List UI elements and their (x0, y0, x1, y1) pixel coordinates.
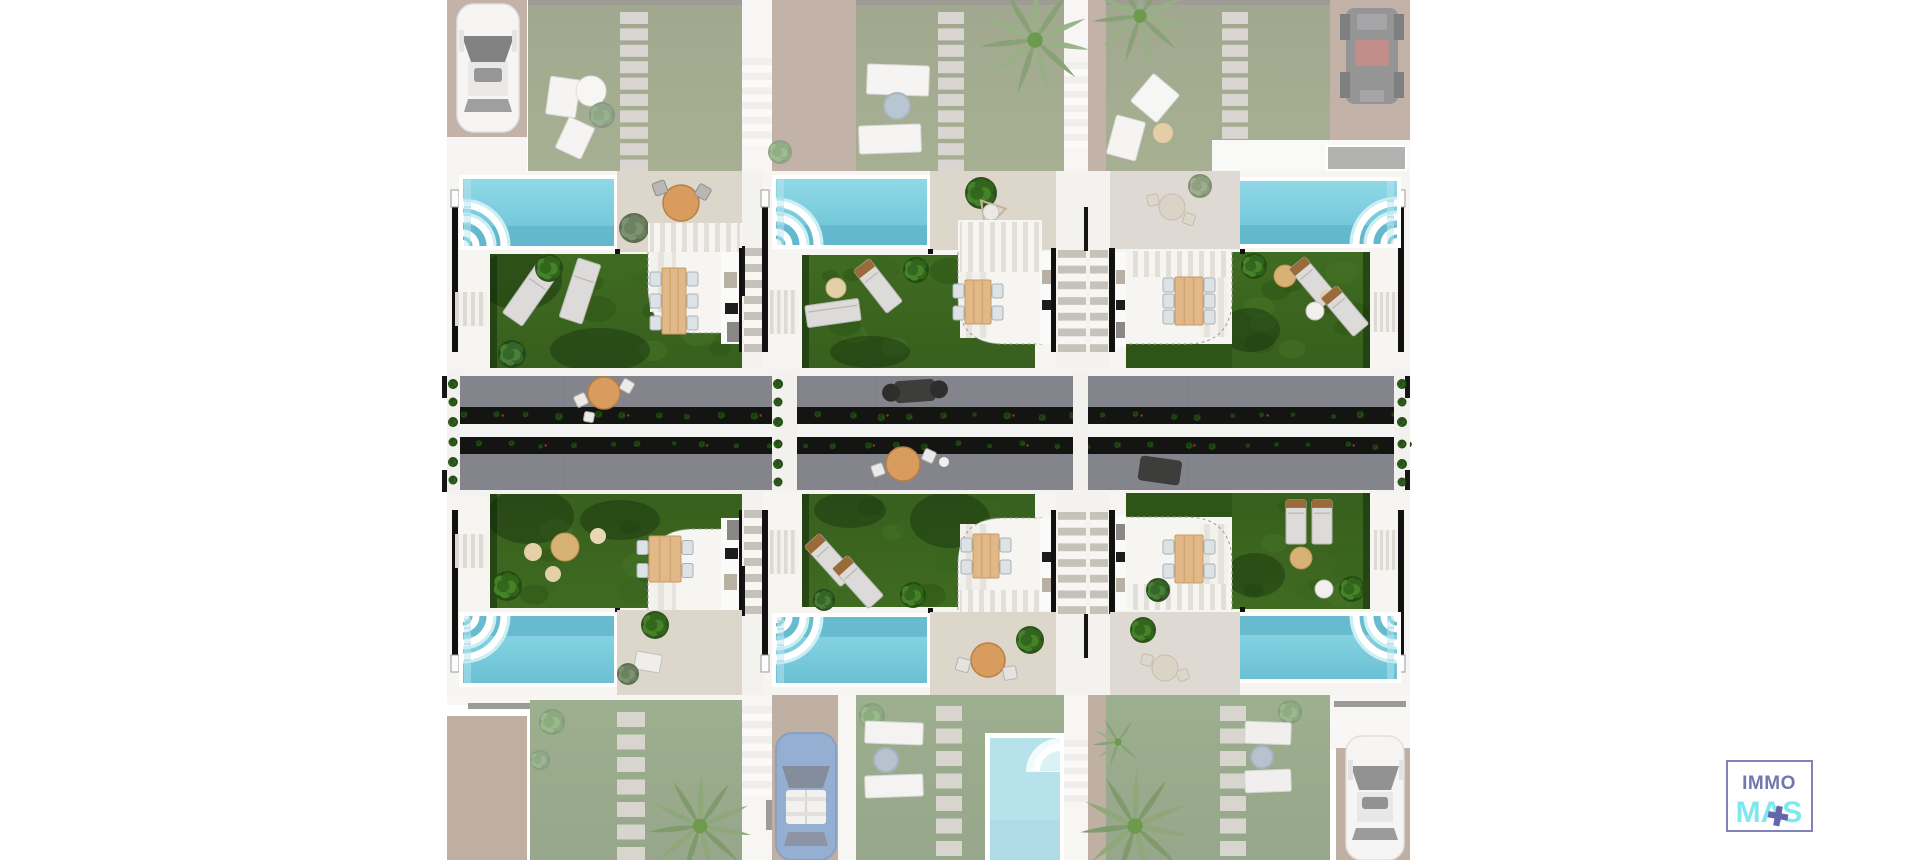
svg-text:IMMO: IMMO (1742, 773, 1796, 794)
